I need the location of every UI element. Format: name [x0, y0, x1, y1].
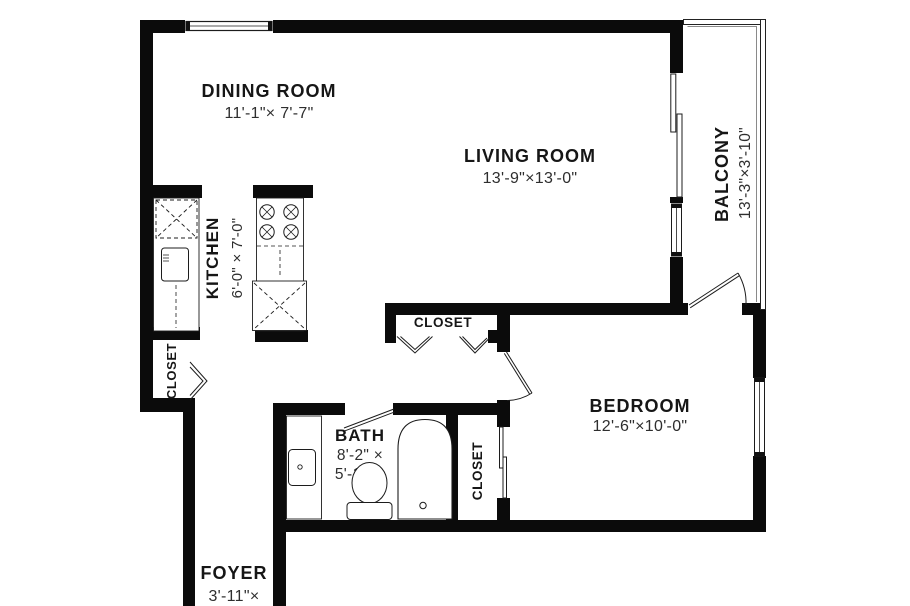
- bathtub: [398, 420, 452, 520]
- kitchen-sink: [162, 248, 189, 281]
- floor-plan: DINING ROOM 11'-1"× 7'-7" LIVING ROOM 13…: [0, 0, 910, 606]
- sliding-door-bedroom-closet: [500, 427, 507, 498]
- foyer-label: FOYER: [198, 563, 270, 584]
- dining-room-label: DINING ROOM: [196, 81, 342, 102]
- door-swing-bedroom: [504, 352, 532, 401]
- fixtures-layer: [0, 0, 910, 606]
- kitchen-label: KITCHEN: [203, 203, 223, 313]
- window-bedroom: [755, 378, 765, 456]
- toilet: [347, 463, 392, 520]
- kitchen-counter-right: [253, 198, 307, 331]
- bifold-doors-middle-closet: [397, 337, 490, 354]
- bedroom-label: BEDROOM: [572, 396, 708, 417]
- bath-label: BATH: [322, 426, 398, 446]
- living-room-dims: 13'-9"×13'-0": [452, 170, 608, 188]
- balcony-label: BALCONY: [711, 114, 733, 234]
- kitchen-counter-left: [154, 198, 200, 331]
- window-dining: [186, 22, 272, 31]
- dining-room-dims: 11'-1"× 7'-7": [196, 105, 342, 123]
- living-room-label: LIVING ROOM: [452, 146, 608, 167]
- vanity-sink: [289, 450, 316, 486]
- foyer-dims: 3'-11"×: [196, 588, 272, 606]
- bifold-door-hall-closet: [190, 362, 207, 400]
- door-swing-balcony: [689, 273, 746, 308]
- bath-vanity: [287, 416, 322, 519]
- bedroom-closet-label: CLOSET: [469, 438, 485, 504]
- hall-closet-label: CLOSET: [163, 341, 179, 401]
- bedroom-dims: 12'-6"×10'-0": [570, 418, 710, 436]
- kitchen-lower-cabinet: [253, 281, 307, 331]
- sliding-door-balcony: [671, 74, 682, 197]
- window-living: [672, 204, 682, 256]
- middle-closet-label: CLOSET: [410, 315, 476, 330]
- kitchen-dims: 6'-0" × 7'-0": [228, 203, 246, 313]
- balcony-dims: 13'-3"×3'-10": [737, 111, 755, 235]
- bath-dims-line1: 8'-2" ×: [322, 447, 398, 465]
